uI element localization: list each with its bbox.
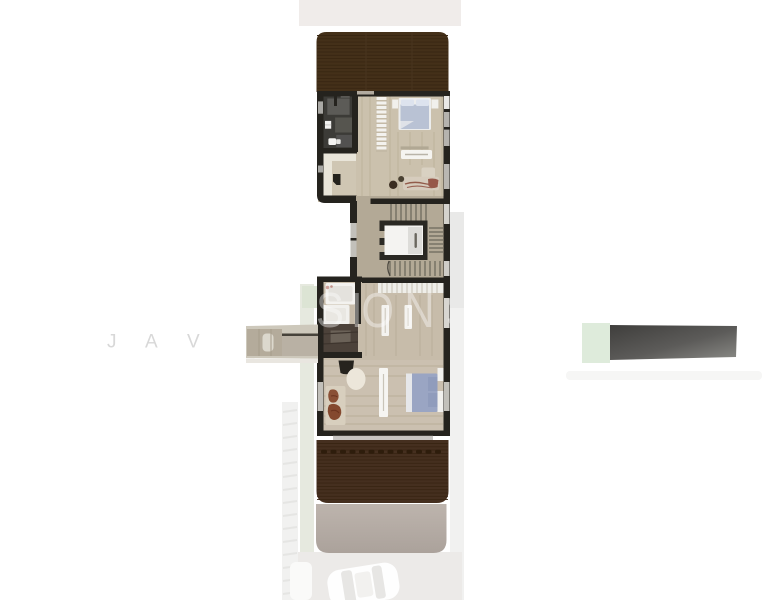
svg-text:S: S [316,283,344,338]
svg-text:N: N [405,283,435,338]
svg-text:O: O [362,283,394,338]
svg-text:V: V [187,332,200,353]
svg-text:J: J [107,332,117,353]
svg-text:A: A [145,332,158,353]
